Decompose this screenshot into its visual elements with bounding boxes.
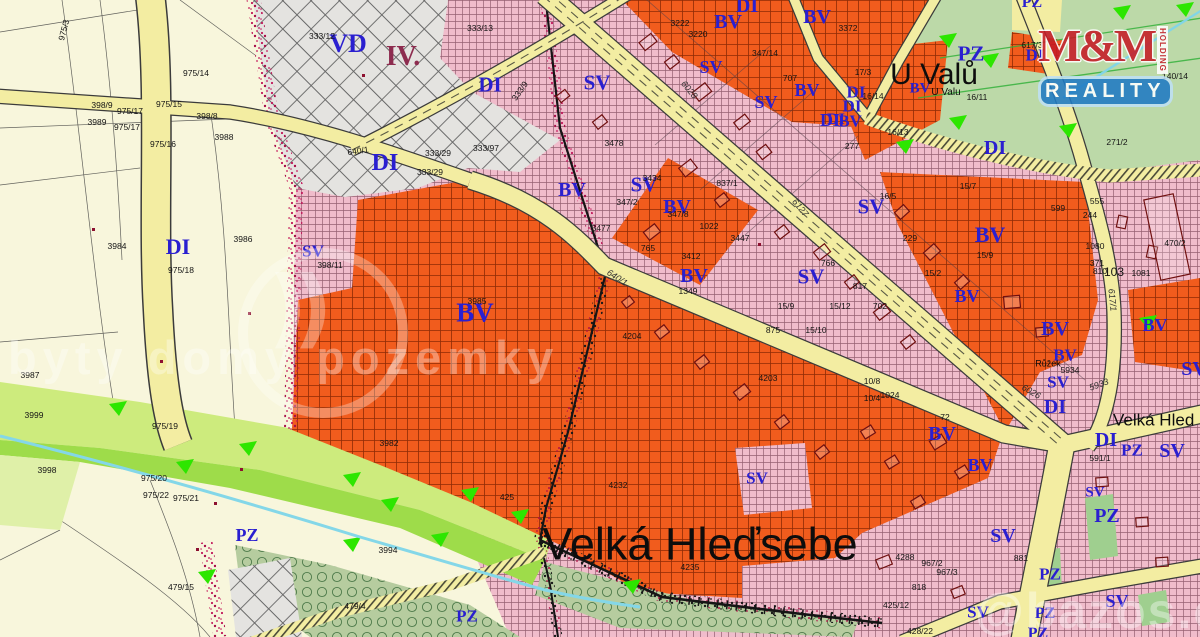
building-outline xyxy=(1116,215,1127,229)
building-outline xyxy=(1136,517,1149,527)
map-canvas xyxy=(0,0,1200,637)
building-outline xyxy=(1156,557,1169,567)
building-outline xyxy=(1036,327,1049,337)
building-outline xyxy=(1096,477,1109,487)
building-outline xyxy=(1004,295,1021,308)
sv-wedge xyxy=(735,443,812,515)
zoning-map: VDDIDIDIDIDIDIDIDIDIDIDIDIBVBVBVBVBVBVBV… xyxy=(0,0,1200,637)
